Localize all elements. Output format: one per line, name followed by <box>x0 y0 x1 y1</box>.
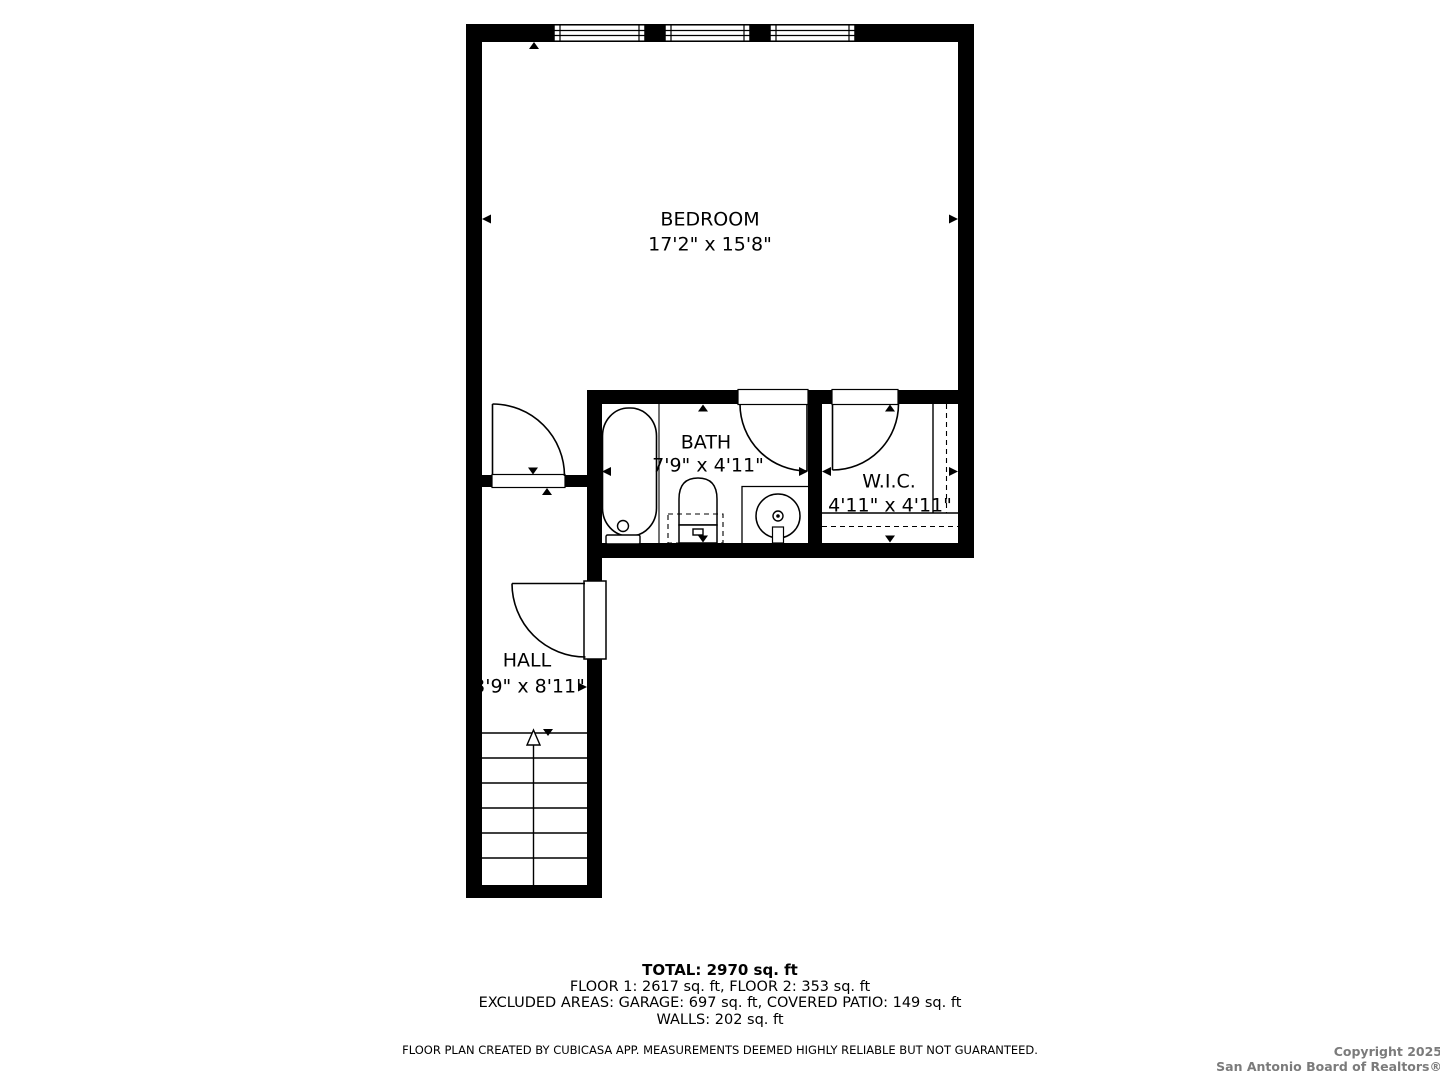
staircase <box>480 730 587 885</box>
window <box>665 25 750 41</box>
room-dims-wic: 4'11" x 4'11" <box>828 496 952 517</box>
floor-plan-canvas <box>0 0 1440 1080</box>
room-label-bath: BATH <box>681 433 731 454</box>
total-area-text: TOTAL: 2970 sq. ft <box>0 962 1440 979</box>
copyright-line1: Copyright 2025 <box>1216 1044 1440 1059</box>
toilet <box>668 478 723 543</box>
room-label-hall: HALL <box>503 651 551 672</box>
room-dims-bath: 7'9" x 4'11" <box>652 456 764 477</box>
wic-door <box>833 404 899 470</box>
excluded-areas-text: EXCLUDED AREAS: GARAGE: 697 sq. ft, COVE… <box>0 995 1440 1012</box>
floor-areas-text: FLOOR 1: 2617 sq. ft, FLOOR 2: 353 sq. f… <box>0 979 1440 996</box>
window <box>770 25 855 41</box>
room-dims-hall: 3'9" x 8'11" <box>473 677 585 698</box>
bedroom-windows <box>554 25 855 41</box>
copyright-notice: Copyright 2025 San Antonio Board of Real… <box>1216 1044 1440 1074</box>
room-label-bedroom: BEDROOM <box>660 210 759 231</box>
walls-area-text: WALLS: 202 sq. ft <box>0 1012 1440 1029</box>
bedroom-door <box>493 404 565 476</box>
room-label-wic: W.I.C. <box>862 472 916 493</box>
room-dims-bedroom: 17'2" x 15'8" <box>648 235 772 256</box>
copyright-line2: San Antonio Board of Realtors® <box>1216 1059 1440 1074</box>
stairs-up-arrow <box>527 730 540 745</box>
area-summary: TOTAL: 2970 sq. ft FLOOR 1: 2617 sq. ft,… <box>0 962 1440 1028</box>
bathtub <box>603 408 657 544</box>
hall-door <box>512 584 586 658</box>
window <box>554 25 645 41</box>
sink <box>742 487 808 544</box>
